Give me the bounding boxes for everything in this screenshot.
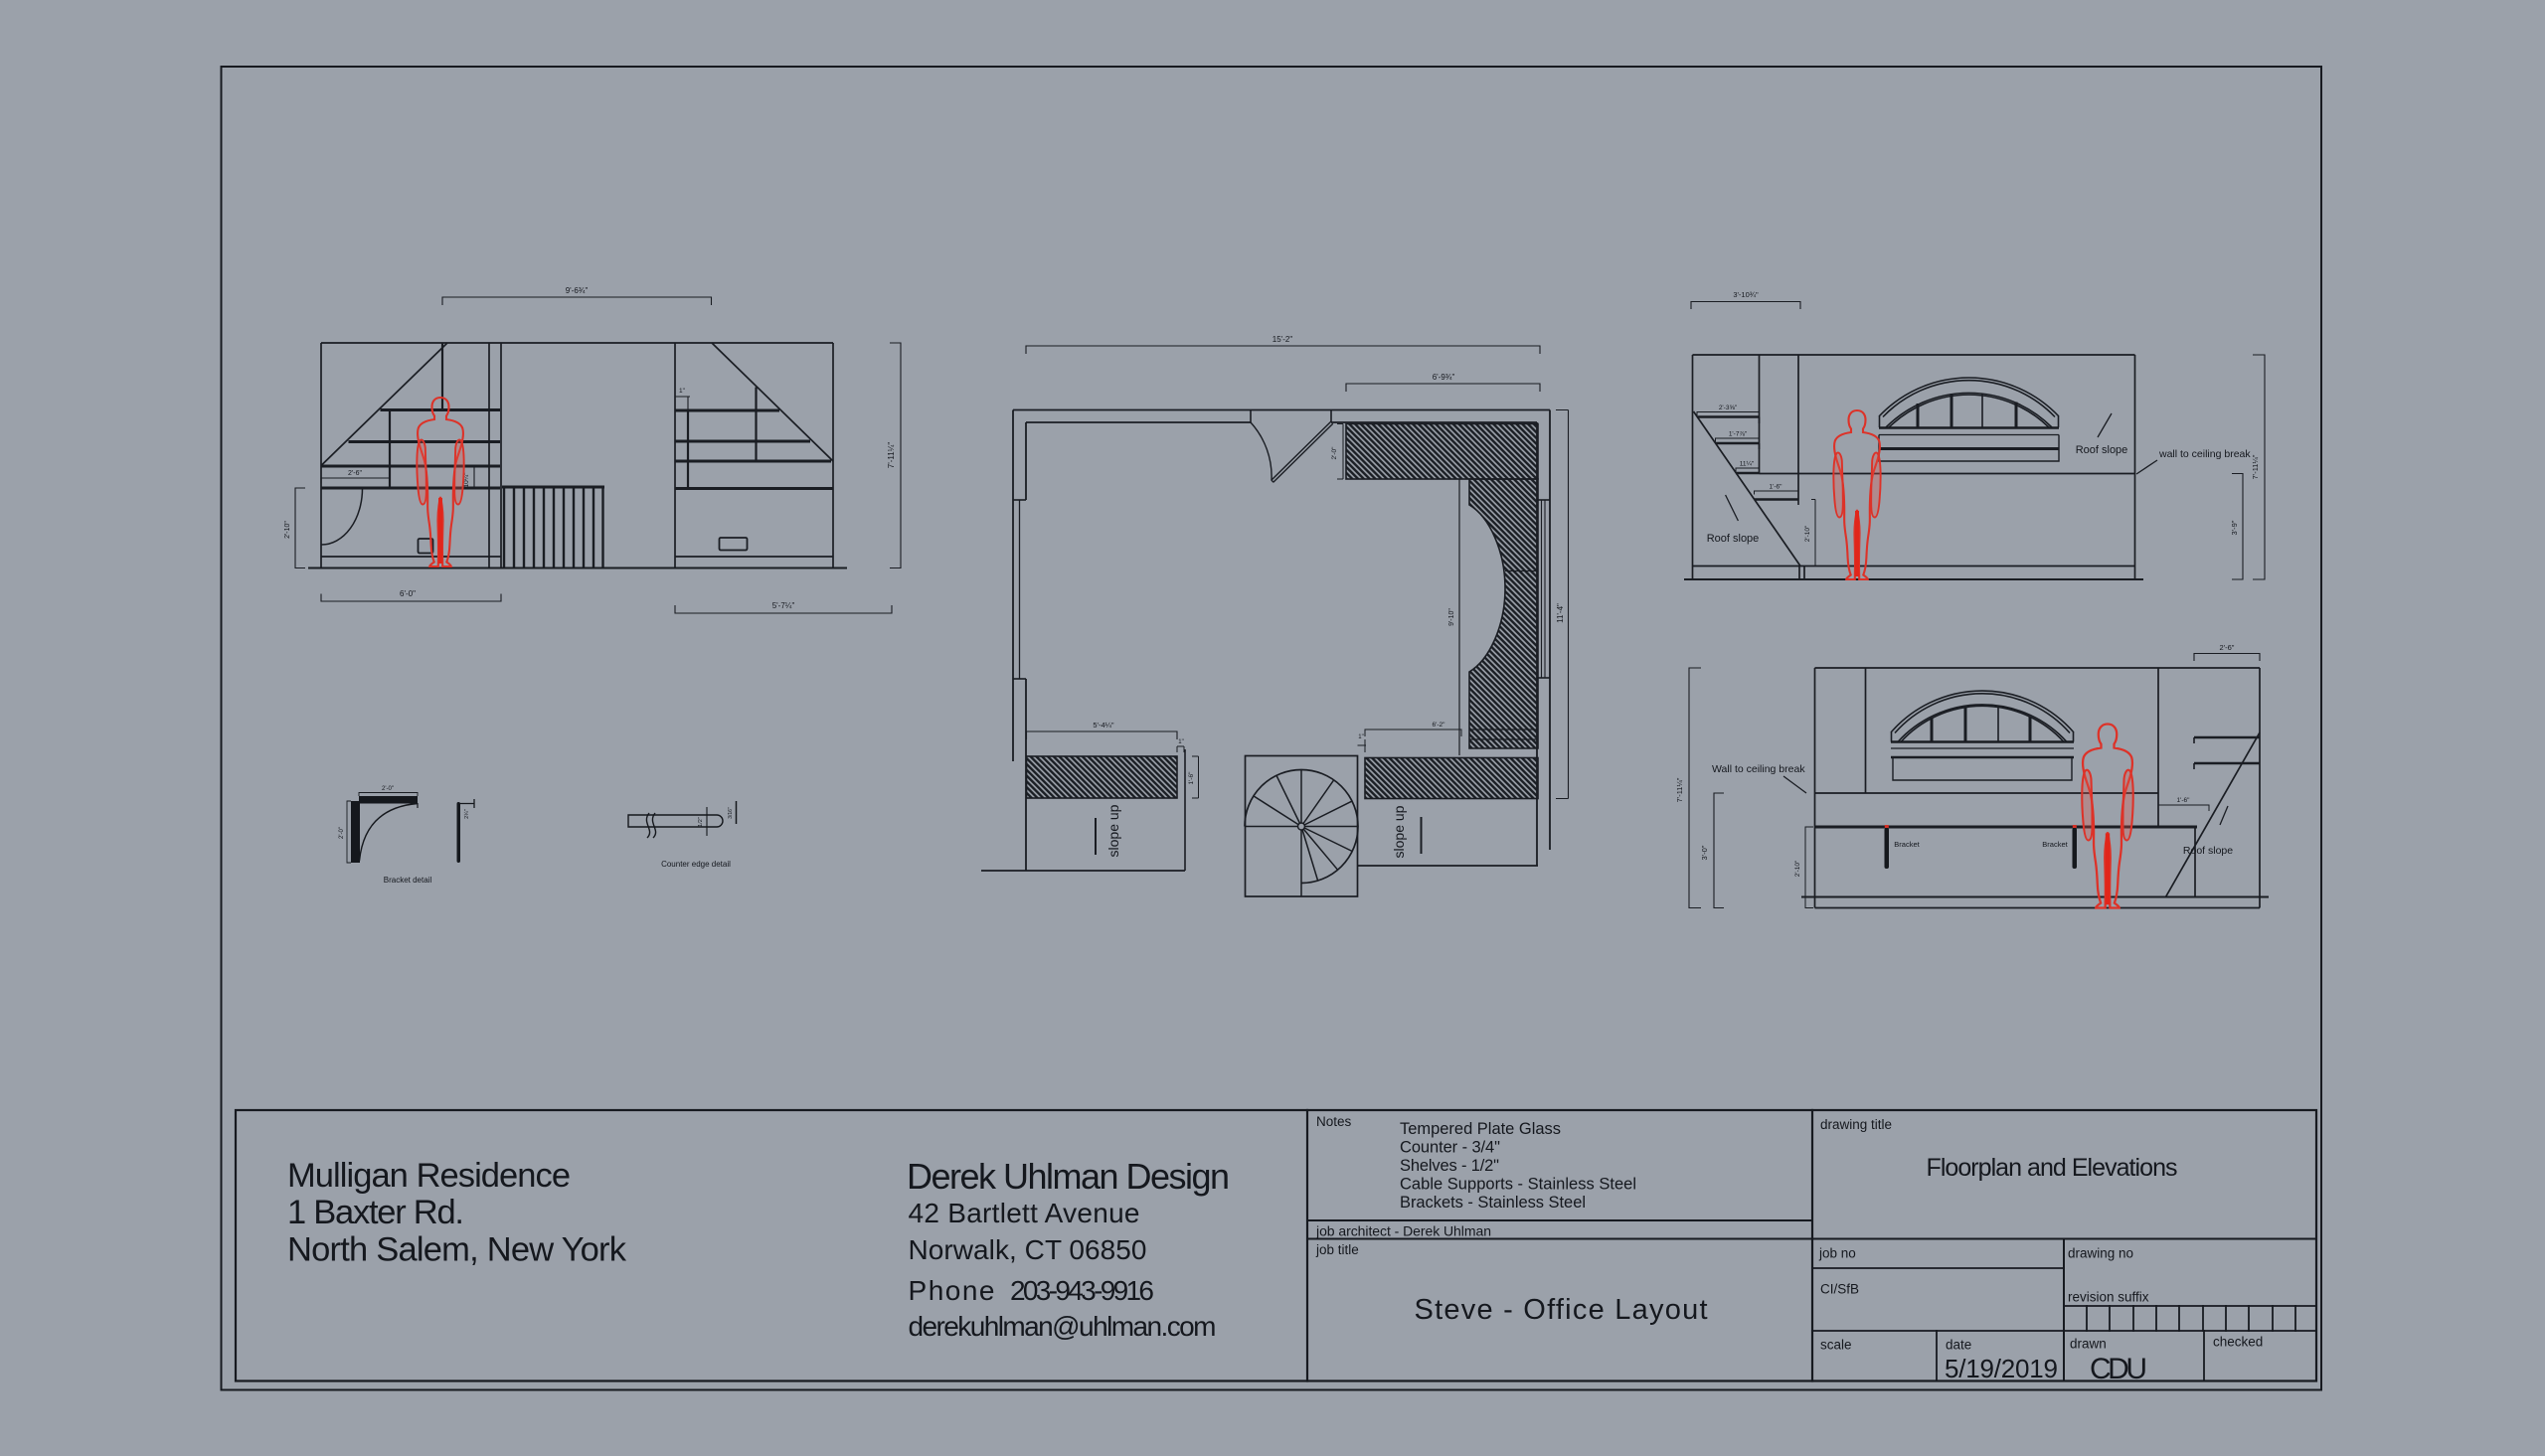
svg-text:Steve - Office Layout: Steve - Office Layout [1415,1294,1708,1326]
svg-text:1 Baxter Rd.: 1 Baxter Rd. [287,1194,464,1231]
svg-text:1'-6": 1'-6" [1770,484,1783,491]
svg-text:Bracket: Bracket [1894,840,1920,849]
svg-text:3'-10¾": 3'-10¾" [1733,290,1759,299]
svg-text:Derek Uhlman Design: Derek Uhlman Design [907,1156,1230,1197]
svg-text:1": 1" [679,388,686,395]
svg-text:2'-10": 2'-10" [1804,525,1811,542]
svg-text:6'-2": 6'-2" [1433,722,1446,728]
svg-text:11'-4": 11'-4" [1556,603,1565,623]
svg-text:2'-3⅝": 2'-3⅝" [1719,404,1738,411]
svg-text:6'-9¾": 6'-9¾" [1433,373,1455,382]
svg-text:Bracket detail: Bracket detail [384,876,432,885]
svg-text:scale: scale [1820,1338,1852,1353]
svg-text:North Salem, New York: North Salem, New York [287,1231,627,1269]
svg-text:derekuhlman@uhlman.com: derekuhlman@uhlman.com [909,1311,1217,1342]
svg-text:2'-6": 2'-6" [348,470,362,477]
svg-text:drawing no: drawing no [2068,1246,2133,1261]
svg-text:Cable Supports - Stainless Ste: Cable Supports - Stainless Steel [1400,1176,1636,1194]
svg-text:drawn: drawn [2070,1337,2107,1352]
svg-text:11¼": 11¼" [1740,461,1755,468]
svg-text:slope up: slope up [1105,804,1121,857]
svg-text:drawing title: drawing title [1820,1117,1892,1132]
svg-text:CDU: CDU [2090,1353,2147,1385]
svg-text:Floorplan and Elevations: Floorplan and Elevations [1927,1154,2178,1182]
svg-text:date: date [1946,1338,1971,1353]
svg-text:9'-10": 9'-10" [1448,608,1455,626]
svg-text:7'-11¼": 7'-11¼" [1675,777,1684,802]
svg-text:revision suffix: revision suffix [2068,1290,2149,1305]
svg-text:2'-6": 2'-6" [2220,643,2235,652]
svg-text:2¼": 2¼" [464,809,470,819]
svg-text:203-943-9916: 203-943-9916 [1010,1275,1154,1306]
svg-text:15'-2": 15'-2" [1272,335,1293,344]
svg-text:Roof slope: Roof slope [1707,533,1760,545]
svg-text:2'-0": 2'-0" [339,827,345,839]
svg-text:CI/SfB: CI/SfB [1820,1282,1859,1297]
svg-text:Phone: Phone [909,1275,995,1306]
svg-text:5'-4¼": 5'-4¼" [1093,721,1114,729]
svg-text:1'-6": 1'-6" [1188,771,1195,785]
svg-text:slope up: slope up [1391,805,1407,858]
svg-text:5/19/2019: 5/19/2019 [1945,1354,2058,1383]
svg-text:checked: checked [2213,1335,2263,1350]
svg-text:6'-0": 6'-0" [400,589,416,598]
svg-text:job no: job no [1818,1246,1856,1261]
svg-text:2'-0": 2'-0" [1331,446,1338,460]
svg-text:7'-11¼": 7'-11¼" [887,442,896,469]
svg-text:1'-7⅞": 1'-7⅞" [1729,431,1748,438]
svg-text:42 Bartlett Avenue: 42 Bartlett Avenue [909,1198,1140,1228]
svg-text:2'-10": 2'-10" [1794,860,1801,877]
svg-text:1": 1" [1178,739,1183,745]
svg-text:Shelves - 1/2": Shelves - 1/2" [1400,1157,1499,1175]
svg-text:3'-0": 3'-0" [1700,845,1709,860]
svg-text:Roof slope: Roof slope [2076,444,2128,456]
svg-text:Bracket: Bracket [2042,840,2068,849]
svg-text:Counter edge detail: Counter edge detail [661,860,731,869]
svg-text:7'-11¼": 7'-11¼" [2251,454,2260,479]
svg-text:3'-9": 3'-9" [2230,520,2239,535]
svg-text:job architect - Derek Uhlman: job architect - Derek Uhlman [1315,1223,1491,1239]
svg-text:Brackets - Stainless Steel: Brackets - Stainless Steel [1400,1194,1586,1212]
svg-text:Wall to ceiling break: Wall to ceiling break [1712,763,1805,775]
svg-text:1'-6": 1'-6" [2177,797,2191,804]
svg-text:2'-0": 2'-0" [382,786,394,792]
svg-text:1": 1" [1358,734,1363,740]
svg-text:Mulligan Residence: Mulligan Residence [287,1157,571,1195]
svg-text:5'-7¼": 5'-7¼" [772,601,795,610]
svg-text:3/16": 3/16" [728,807,734,819]
svg-text:job title: job title [1315,1242,1359,1257]
svg-text:Counter - 3/4": Counter - 3/4" [1400,1139,1500,1157]
svg-text:Notes: Notes [1316,1114,1352,1129]
svg-text:Roof slope: Roof slope [2183,845,2233,857]
svg-text:9'-6¾": 9'-6¾" [566,286,589,295]
svg-text:Norwalk, CT 06850: Norwalk, CT 06850 [909,1234,1147,1265]
svg-text:wall to ceiling break: wall to ceiling break [2158,448,2251,460]
svg-text:Tempered Plate Glass: Tempered Plate Glass [1400,1120,1561,1138]
svg-text:1/2": 1/2" [698,817,704,827]
svg-text:2'-10": 2'-10" [284,521,291,539]
